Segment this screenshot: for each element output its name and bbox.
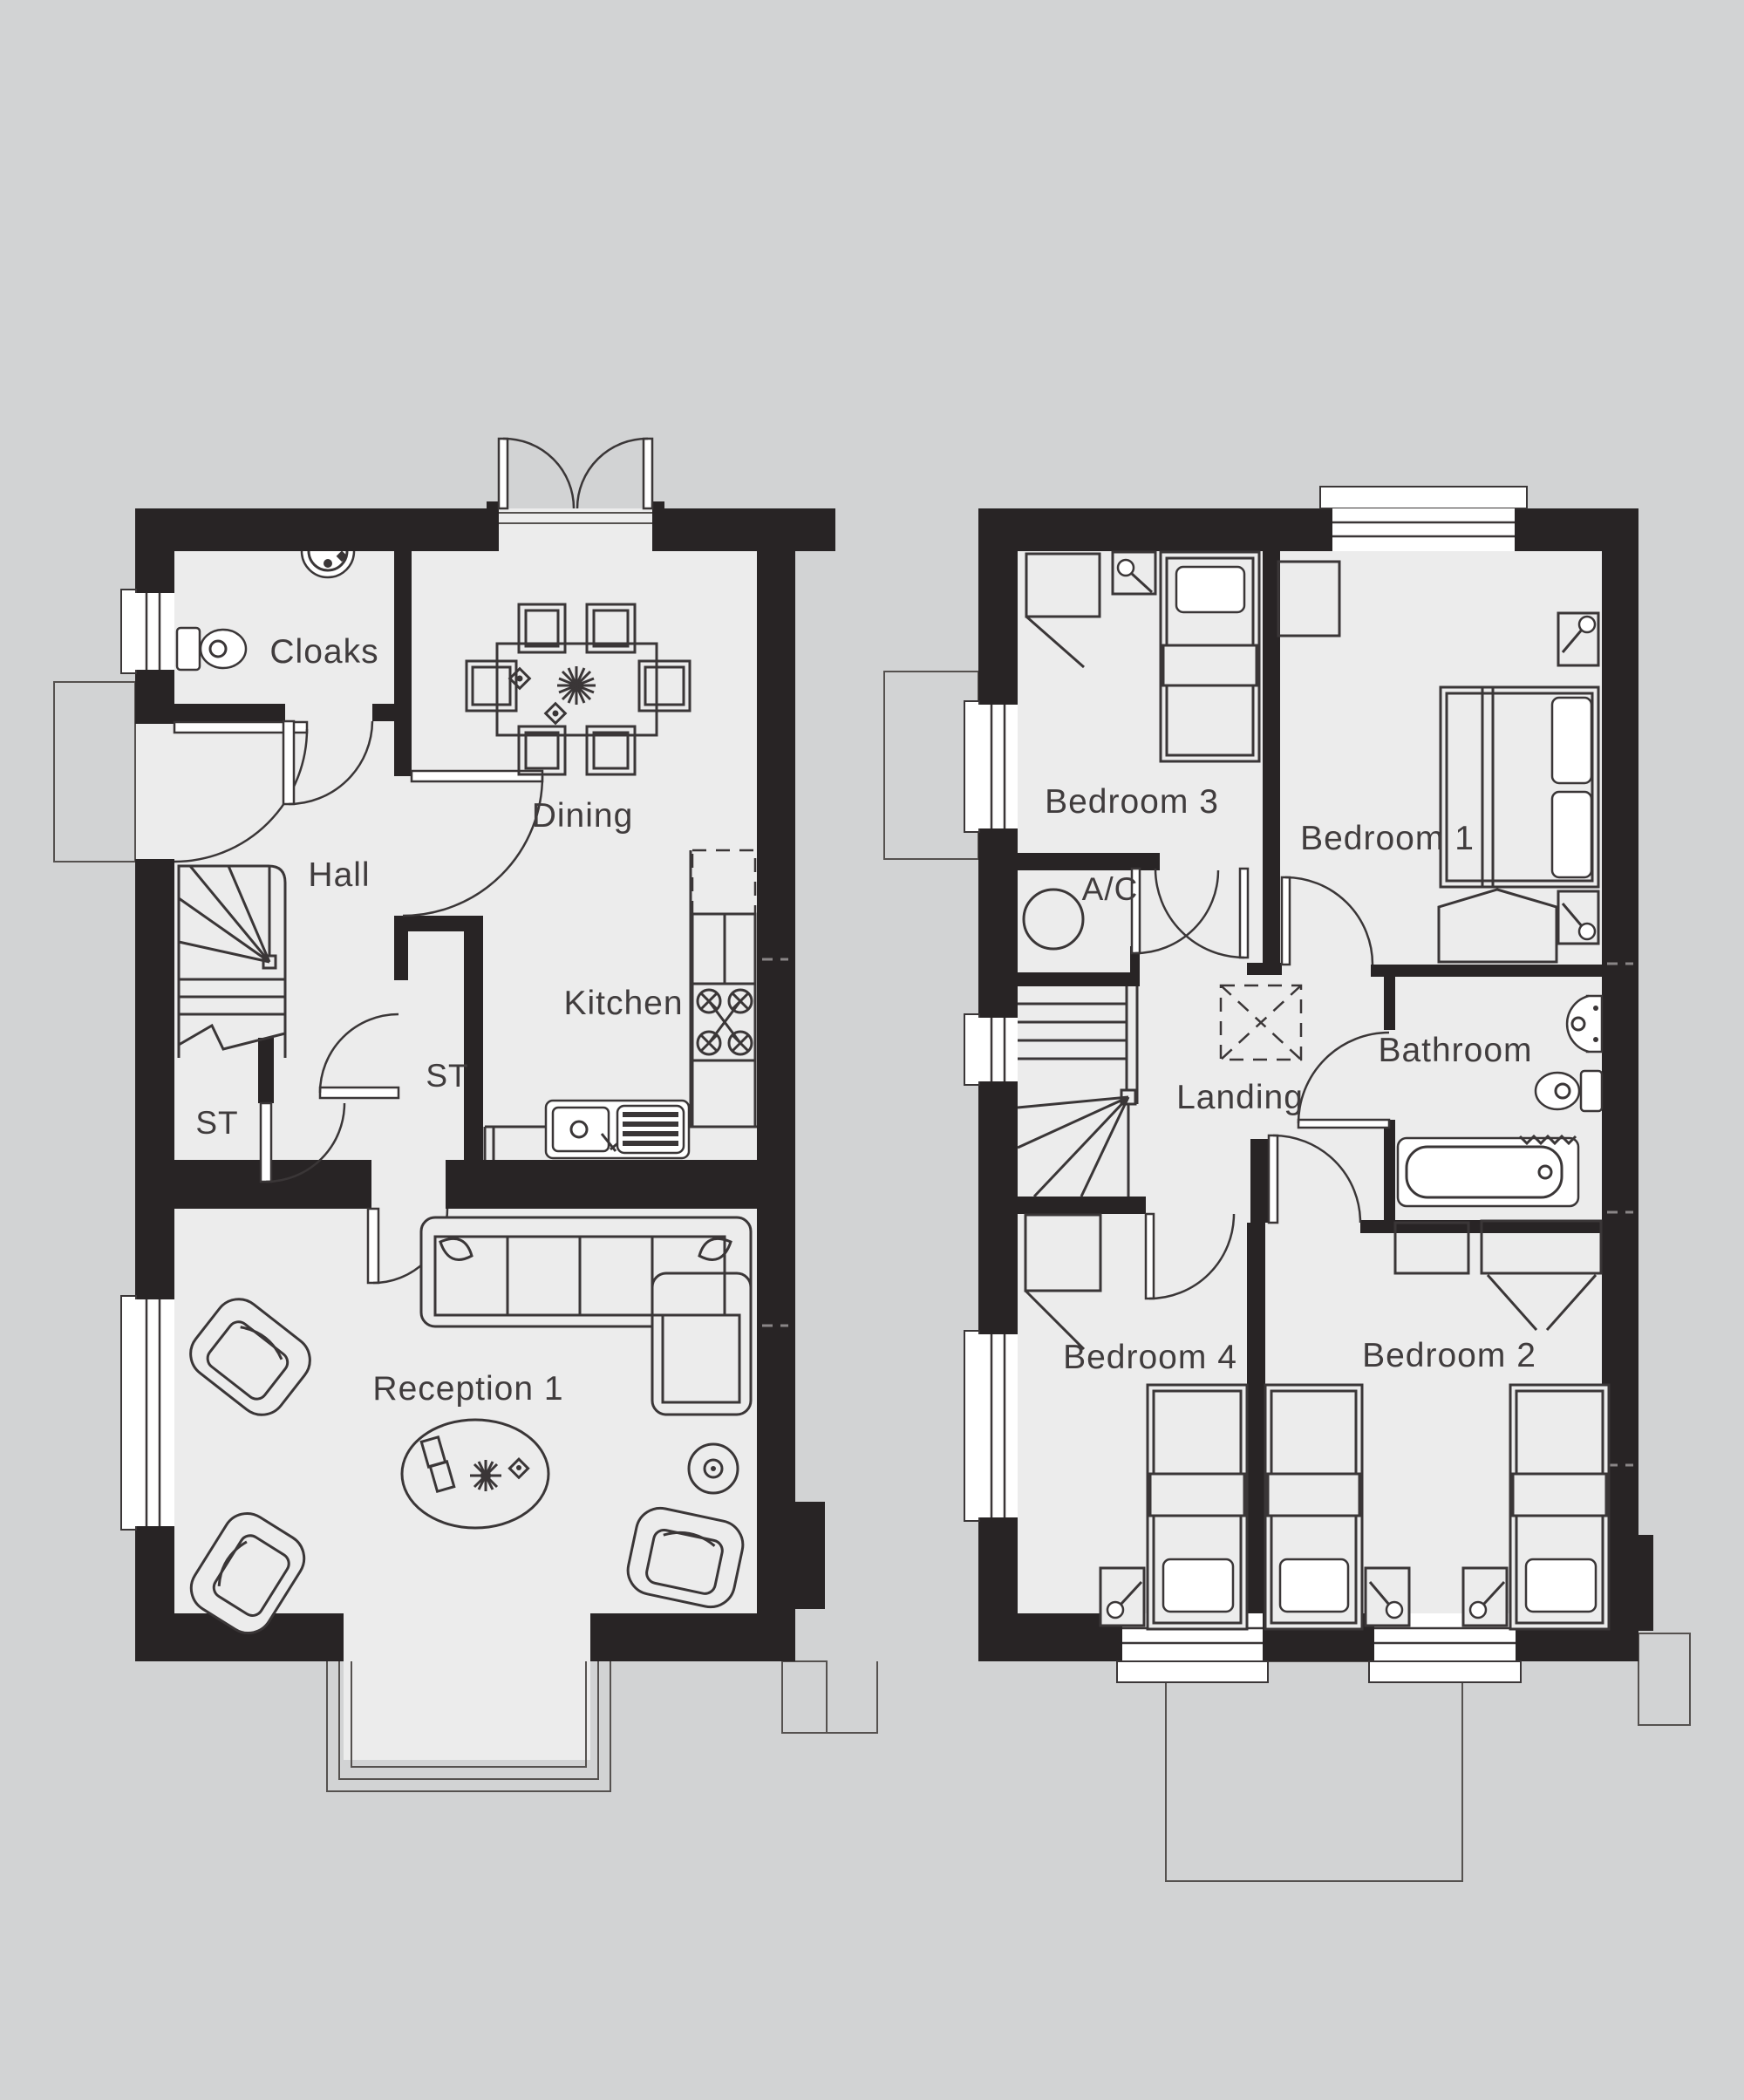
room-label-bedroom2: Bedroom 2: [1362, 1337, 1536, 1374]
window-icon: [1320, 487, 1527, 551]
single-bed-icon: [1265, 1385, 1362, 1629]
bedside-table-lamp-icon: [1463, 1568, 1507, 1626]
first-floor-plan: Bedroom 3 Bedroom 1 A/C Landing Bathroom…: [884, 487, 1690, 1881]
room-label-kitchen: Kitchen: [563, 985, 683, 1022]
flower-icon: [470, 1460, 501, 1491]
toilet-icon: [177, 628, 246, 670]
exterior-step-lines: [1166, 1661, 1462, 1881]
ground-floor-plan: Cloaks Dining Hall Kitchen ST ST Recepti…: [54, 439, 877, 1791]
porch-canopy-icon: [54, 682, 135, 862]
room-label-bathroom: Bathroom: [1378, 1032, 1532, 1069]
side-table-icon: [689, 1444, 738, 1493]
window-icon: [964, 701, 1018, 832]
room-label-landing: Landing: [1176, 1079, 1304, 1116]
room-label-bedroom4: Bedroom 4: [1063, 1339, 1237, 1376]
toilet-icon: [1536, 1071, 1602, 1111]
bedside-table-lamp-icon: [1558, 613, 1598, 665]
room-label-bedroom3: Bedroom 3: [1045, 783, 1219, 821]
single-bed-icon: [1510, 1385, 1609, 1629]
bedside-table-lamp-icon: [1100, 1568, 1144, 1626]
room-label-bedroom1: Bedroom 1: [1300, 820, 1475, 857]
room-label-hall: Hall: [308, 856, 370, 894]
room-label-ac: A/C: [1082, 871, 1139, 907]
room-label-cloaks: Cloaks: [269, 633, 378, 671]
single-bed-icon: [1148, 1385, 1247, 1629]
floor-plan-canvas: Cloaks Dining Hall Kitchen ST ST Recepti…: [0, 0, 1744, 2100]
single-bed-icon: [1161, 552, 1259, 761]
bedside-table-lamp-icon: [1366, 1568, 1409, 1626]
room-label-st-cupboard: ST: [426, 1058, 468, 1094]
room-label-dining: Dining: [532, 797, 634, 835]
window-icon: [121, 1296, 174, 1530]
room-label-reception: Reception 1: [372, 1370, 563, 1408]
window-icon: [964, 1331, 1018, 1521]
kitchen-sink-icon: [546, 1101, 689, 1158]
bedside-table-lamp-icon: [1558, 891, 1598, 944]
window-icon: [121, 590, 174, 673]
bath-icon: [1398, 1136, 1578, 1206]
window-icon: [964, 1014, 1018, 1085]
exterior-step-lines: [1638, 1633, 1690, 1725]
exterior-step-lines: [782, 1661, 877, 1733]
floor-plan-svg: Cloaks Dining Hall Kitchen ST ST Recepti…: [0, 0, 1744, 2100]
room-label-st-understairs: ST: [195, 1105, 238, 1141]
bedside-table-lamp-icon: [1113, 552, 1155, 594]
centerpiece-icon: [557, 666, 596, 705]
